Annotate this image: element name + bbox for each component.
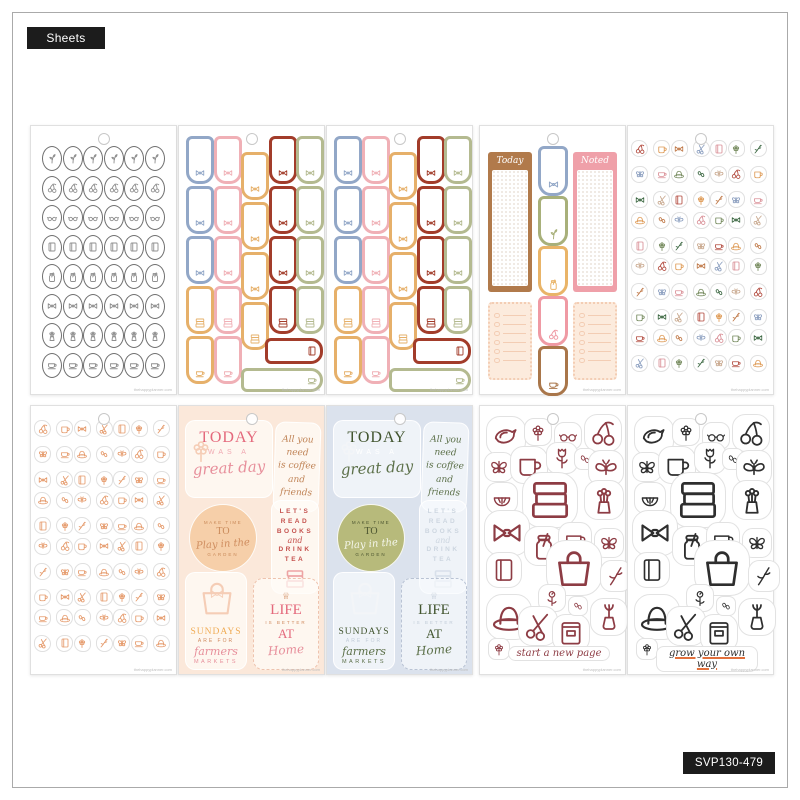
quote-line: farmers	[334, 645, 394, 658]
oval-sticker	[104, 353, 124, 378]
mini-sticker	[34, 492, 51, 509]
cherries-icon	[752, 286, 764, 298]
mini-sticker	[728, 309, 745, 326]
oval-sticker	[124, 176, 144, 201]
mini-sticker	[631, 355, 648, 372]
moth-icon	[695, 332, 707, 344]
vase-icon	[593, 601, 625, 633]
quote-sundays-markets: SUNDAYSARE FORfarmersMARKETS	[185, 572, 247, 670]
mini-sticker	[631, 283, 648, 300]
type-badge: Sheets	[27, 27, 105, 49]
mini-sticker	[34, 446, 51, 463]
sheet-oval-cameo-stickers: thehappyplanner.com	[30, 125, 177, 395]
jar-icon	[149, 271, 161, 283]
oval-sticker	[145, 205, 165, 230]
hat-icon	[155, 637, 167, 649]
quote-line: great day	[186, 457, 273, 479]
quote-line: IS BETTER	[254, 620, 318, 625]
oval-sticker	[124, 264, 144, 289]
oval-sticker	[63, 176, 83, 201]
oval-sticker	[145, 264, 165, 289]
notebook-icon	[555, 617, 587, 649]
scissors-icon	[634, 357, 646, 369]
oval-sticker	[83, 353, 103, 378]
branch-icon	[751, 563, 777, 589]
sheet-quotes-cream: TODAYWAS Agreat dayAll youneedis coffeea…	[178, 405, 325, 675]
mini-sticker	[74, 492, 91, 509]
hat-icon	[695, 286, 707, 298]
mini-sticker	[113, 492, 130, 509]
bookmark-tab-orange	[334, 286, 362, 334]
hat-icon	[656, 332, 668, 344]
mini-sticker	[74, 589, 91, 606]
checklist-row	[494, 358, 526, 364]
mini-sticker	[56, 492, 73, 509]
oval-sticker	[104, 146, 124, 171]
mini-sticker	[750, 355, 767, 372]
mini-sticker	[728, 191, 745, 208]
checklist-row	[579, 340, 611, 346]
bookmark-tab-blue	[334, 136, 362, 184]
mini-sticker	[113, 420, 130, 437]
teacup-icon	[87, 359, 99, 371]
book-icon	[489, 555, 519, 585]
mini-sticker	[631, 237, 648, 254]
noted-label: Noted	[573, 156, 617, 166]
mini-sticker	[710, 166, 727, 183]
mini-sticker	[131, 589, 148, 606]
mini-sticker	[96, 589, 113, 606]
dot-grid-area	[492, 170, 528, 286]
oval-sticker	[104, 264, 124, 289]
mini-sticker	[671, 329, 688, 346]
glasses-icon	[108, 212, 120, 224]
quote-line: LET'S	[272, 507, 318, 517]
butterfly-icon	[695, 240, 707, 252]
flower-icon	[639, 641, 655, 657]
flower-icon	[730, 143, 742, 155]
bow-icon	[277, 167, 289, 179]
bow-icon	[194, 267, 206, 279]
hat-icon	[76, 448, 88, 460]
mini-sticker	[34, 563, 51, 580]
bow-icon	[128, 300, 140, 312]
quote-line: BOOKS	[420, 527, 466, 537]
flower-icon	[713, 311, 725, 323]
cherries-icon	[587, 417, 619, 449]
brand-watermark: thehappyplanner.com	[134, 387, 172, 392]
quote-line: Home	[402, 640, 467, 658]
moth-icon	[739, 453, 769, 483]
leaf-icon	[752, 143, 764, 155]
bouquet-icon	[67, 330, 79, 342]
oval-sticker	[42, 146, 62, 171]
beans-icon	[673, 332, 685, 344]
quote-line: farmers	[186, 645, 246, 658]
quote-life-at-home: ♕LIFEIS BETTERATHome	[401, 578, 467, 670]
sticker-vase	[590, 598, 628, 636]
book-icon	[67, 241, 79, 253]
cherries-icon	[155, 566, 167, 578]
mini-sticker	[153, 420, 170, 437]
mini-sticker	[74, 420, 91, 437]
bow-icon	[370, 167, 382, 179]
brand-watermark: thehappyplanner.com	[282, 387, 320, 392]
jar-icon	[67, 271, 79, 283]
bookmark-tab-green	[444, 236, 472, 284]
bow-icon	[222, 167, 234, 179]
quote-line: LIFE	[254, 602, 318, 619]
books-icon	[194, 317, 206, 329]
cherries-icon	[37, 423, 49, 435]
bow-icon	[356, 585, 374, 603]
books-icon	[525, 475, 575, 525]
checklist-line	[588, 351, 612, 352]
checklist-line	[588, 315, 612, 316]
oval-sticker	[42, 353, 62, 378]
quote-line: IS BETTER	[402, 620, 466, 625]
books-icon	[397, 333, 409, 345]
mini-sticker	[153, 471, 170, 488]
mini-sticker	[56, 538, 73, 555]
quote-line: READ	[272, 517, 318, 527]
book-icon	[673, 194, 685, 206]
butterfly-icon	[59, 566, 71, 578]
oval-sticker	[42, 205, 62, 230]
mini-sticker	[653, 309, 670, 326]
quote-line: GARDEN	[338, 552, 404, 557]
quote-line: MARKETS	[186, 659, 246, 665]
mini-sticker	[34, 517, 51, 534]
leaf-icon	[713, 194, 725, 206]
book-icon	[37, 520, 49, 532]
checklist-row	[579, 358, 611, 364]
tulip-icon	[697, 445, 723, 471]
mini-sticker	[153, 538, 170, 555]
quote-line: MAKE TIME	[190, 520, 256, 525]
mini-sticker	[653, 166, 670, 183]
vase-icon	[741, 601, 773, 633]
teacup-icon	[59, 448, 71, 460]
bookmark-tab-pink	[362, 336, 390, 384]
hat-icon	[59, 612, 71, 624]
bow-icon	[133, 494, 145, 506]
teacup-icon	[108, 359, 120, 371]
quote-line: and	[420, 536, 466, 545]
book-icon	[87, 241, 99, 253]
mini-sticker	[653, 258, 670, 275]
branch-icon	[603, 563, 629, 589]
moth-icon	[591, 453, 621, 483]
bookmark-tab-red	[269, 286, 297, 334]
beans-icon	[713, 286, 725, 298]
mini-sticker	[56, 471, 73, 488]
jar-icon	[547, 278, 560, 291]
book-icon	[634, 240, 646, 252]
mini-sticker	[653, 191, 670, 208]
bookmark-tab-red	[269, 136, 297, 184]
quote-line: SUNDAYS	[334, 627, 394, 637]
glasses-icon	[128, 212, 140, 224]
flower-icon	[752, 260, 764, 272]
oval-sticker	[63, 264, 83, 289]
checklist-line	[503, 333, 527, 334]
brand-watermark: thehappyplanner.com	[282, 667, 320, 672]
beans-icon	[656, 214, 668, 226]
quote-line: friends	[422, 486, 466, 501]
bow-icon	[730, 214, 742, 226]
sku-badge: SVP130-479	[683, 752, 775, 774]
book-icon	[133, 540, 145, 552]
bookmark-tab-red	[265, 338, 323, 364]
books-icon	[342, 317, 354, 329]
oval-sticker	[104, 205, 124, 230]
sticker-branch	[748, 560, 780, 592]
quote-line: Play in the	[190, 536, 257, 552]
mini-sticker	[728, 329, 745, 346]
cherries-icon	[67, 182, 79, 194]
notebook-icon	[703, 617, 735, 649]
checklist-row	[494, 331, 526, 337]
beans-icon	[719, 599, 733, 613]
checkbox-dot	[494, 358, 500, 364]
mini-sticker	[96, 609, 113, 626]
book-icon	[46, 241, 58, 253]
mini-sticker	[693, 258, 710, 275]
cup-icon	[133, 612, 145, 624]
mini-sticker	[56, 589, 73, 606]
bookmark-tab-pink	[362, 186, 390, 234]
bookmark-tab-red	[417, 136, 445, 184]
bookmark-tab-orange	[241, 152, 269, 200]
bouquet-icon	[128, 330, 140, 342]
sticker-beans	[568, 596, 588, 616]
beans-icon	[695, 168, 707, 180]
butterfly-icon	[116, 637, 128, 649]
hat-icon	[730, 240, 742, 252]
bookmark-tab-green	[444, 136, 472, 184]
checklist-line	[503, 315, 527, 316]
flower-icon	[116, 591, 128, 603]
oval-sticker	[83, 235, 103, 260]
mini-sticker	[693, 212, 710, 229]
bookmark-tab-green	[296, 286, 324, 334]
beans-icon	[116, 566, 128, 578]
oval-sticker	[83, 205, 103, 230]
cup-icon	[673, 260, 685, 272]
cup-icon	[155, 448, 167, 460]
mini-sticker	[750, 237, 767, 254]
mini-sticker	[96, 563, 113, 580]
checklist-row	[494, 322, 526, 328]
bookmark-tab-orange	[389, 152, 417, 200]
leaf-icon	[730, 311, 742, 323]
mini-sticker	[74, 517, 91, 534]
quote-line: TO	[190, 526, 256, 537]
cherries-icon	[730, 168, 742, 180]
bookmark-tab-pink	[214, 236, 242, 284]
bookmark-tab-red	[417, 286, 445, 334]
bow-icon	[208, 585, 226, 603]
butterfly-icon	[635, 455, 659, 479]
glasses-icon	[46, 212, 58, 224]
mini-sticker	[96, 446, 113, 463]
brand-watermark: thehappyplanner.com	[583, 387, 621, 392]
mini-sticker	[710, 309, 727, 326]
mini-sticker	[113, 471, 130, 488]
brand-watermark: thehappyplanner.com	[430, 667, 468, 672]
checkbox-dot	[579, 322, 585, 328]
mini-sticker	[74, 635, 91, 652]
quote-line: TEA	[272, 555, 318, 565]
hat-icon	[37, 494, 49, 506]
sheet-today-noted-lists: TodayNotedthehappyplanner.com	[479, 125, 626, 395]
bow-icon	[425, 267, 437, 279]
bookmark-tab-pink	[214, 186, 242, 234]
bow-icon	[304, 167, 316, 179]
beans-icon	[76, 612, 88, 624]
oval-sticker	[145, 353, 165, 378]
moth-icon	[76, 494, 88, 506]
mini-sticker	[671, 258, 688, 275]
mini-sticker	[153, 492, 170, 509]
flower-icon	[675, 421, 697, 443]
mini-sticker	[113, 609, 130, 626]
oval-sticker	[145, 323, 165, 348]
books-icon	[222, 317, 234, 329]
bouquet-icon	[149, 330, 161, 342]
mini-sticker	[693, 283, 710, 300]
sticker-cherries	[732, 414, 770, 452]
bouquet-icon	[587, 483, 621, 517]
mini-sticker	[153, 563, 170, 580]
mini-sticker	[750, 212, 767, 229]
quote-line: BOOKS	[272, 527, 318, 537]
hat-icon	[634, 214, 646, 226]
bow-icon	[452, 167, 464, 179]
mini-sticker	[113, 446, 130, 463]
book-icon	[128, 241, 140, 253]
hang-hole	[547, 133, 559, 145]
brand-watermark: thehappyplanner.com	[731, 667, 769, 672]
sticker-flower	[636, 638, 658, 660]
mini-sticker	[113, 517, 130, 534]
bow-icon	[673, 143, 685, 155]
oval-sticker	[83, 294, 103, 319]
beans-icon	[98, 448, 110, 460]
mini-sticker	[728, 355, 745, 372]
oval-sticker	[145, 294, 165, 319]
mini-sticker	[96, 517, 113, 534]
bow-icon	[370, 217, 382, 229]
mini-sticker	[153, 589, 170, 606]
mini-sticker	[653, 283, 670, 300]
mini-sticker	[113, 635, 130, 652]
scissors-icon	[116, 540, 128, 552]
flower-icon	[133, 423, 145, 435]
bow-icon	[277, 267, 289, 279]
bow-icon	[37, 474, 49, 486]
mini-sticker	[671, 212, 688, 229]
cup-icon	[752, 168, 764, 180]
mini-sticker	[153, 517, 170, 534]
bookmark-tab-orange	[334, 336, 362, 384]
checkbox-dot	[579, 331, 585, 337]
mini-tab	[538, 246, 568, 296]
book-icon	[656, 357, 668, 369]
moth-icon	[634, 260, 646, 272]
teacup-icon	[133, 637, 145, 649]
flower-icon	[98, 474, 110, 486]
butterfly-icon	[752, 311, 764, 323]
oval-sticker	[42, 294, 62, 319]
brand-watermark: thehappyplanner.com	[430, 387, 468, 392]
oval-sticker	[63, 353, 83, 378]
mini-sticker	[728, 283, 745, 300]
quote-garden-circle: MAKE TIMETOPlay in theGARDEN	[189, 504, 257, 572]
bow-icon	[634, 194, 646, 206]
scissors-icon	[37, 637, 49, 649]
mini-sticker	[750, 309, 767, 326]
books-icon	[277, 317, 289, 329]
mini-sticker	[131, 517, 148, 534]
bouquet-icon	[735, 483, 769, 517]
checklist-row	[494, 313, 526, 319]
moth-icon	[116, 448, 128, 460]
mini-sticker	[631, 258, 648, 275]
teacup-icon	[194, 367, 206, 379]
quote-line: ARE FOR	[334, 638, 394, 644]
teacup-icon	[116, 520, 128, 532]
checklist-line	[503, 342, 527, 343]
checkbox-dot	[494, 340, 500, 346]
quote-life-at-home: ♕LIFEIS BETTERATHome	[253, 578, 319, 670]
teacup-icon	[370, 367, 382, 379]
mini-sticker	[631, 191, 648, 208]
butterfly-icon	[155, 591, 167, 603]
bow-icon	[249, 283, 261, 295]
quote-line: DRINK	[272, 545, 318, 555]
bookmark-tab-blue	[334, 236, 362, 284]
mini-sticker	[671, 191, 688, 208]
checklist-row	[494, 349, 526, 355]
butterfly-icon	[730, 194, 742, 206]
bow-icon	[452, 217, 464, 229]
mini-sticker	[710, 191, 727, 208]
quote-line: READ	[420, 517, 466, 527]
sticker-book	[634, 552, 670, 588]
mini-sticker	[653, 140, 670, 157]
glasses-icon	[67, 212, 79, 224]
cherries-icon	[128, 182, 140, 194]
sticker-vase	[738, 598, 776, 636]
checkbox-dot	[494, 322, 500, 328]
mini-sticker	[710, 237, 727, 254]
mini-sticker	[631, 309, 648, 326]
bow-icon	[342, 217, 354, 229]
oval-sticker	[124, 323, 144, 348]
flower-icon	[673, 357, 685, 369]
mini-sticker	[710, 283, 727, 300]
moth-icon	[98, 612, 110, 624]
book-icon	[98, 591, 110, 603]
teacup-icon	[222, 367, 234, 379]
scissors-icon	[155, 494, 167, 506]
bow-icon	[249, 233, 261, 245]
teacup-icon	[76, 566, 88, 578]
mini-sticker	[653, 329, 670, 346]
scissors-icon	[673, 311, 685, 323]
